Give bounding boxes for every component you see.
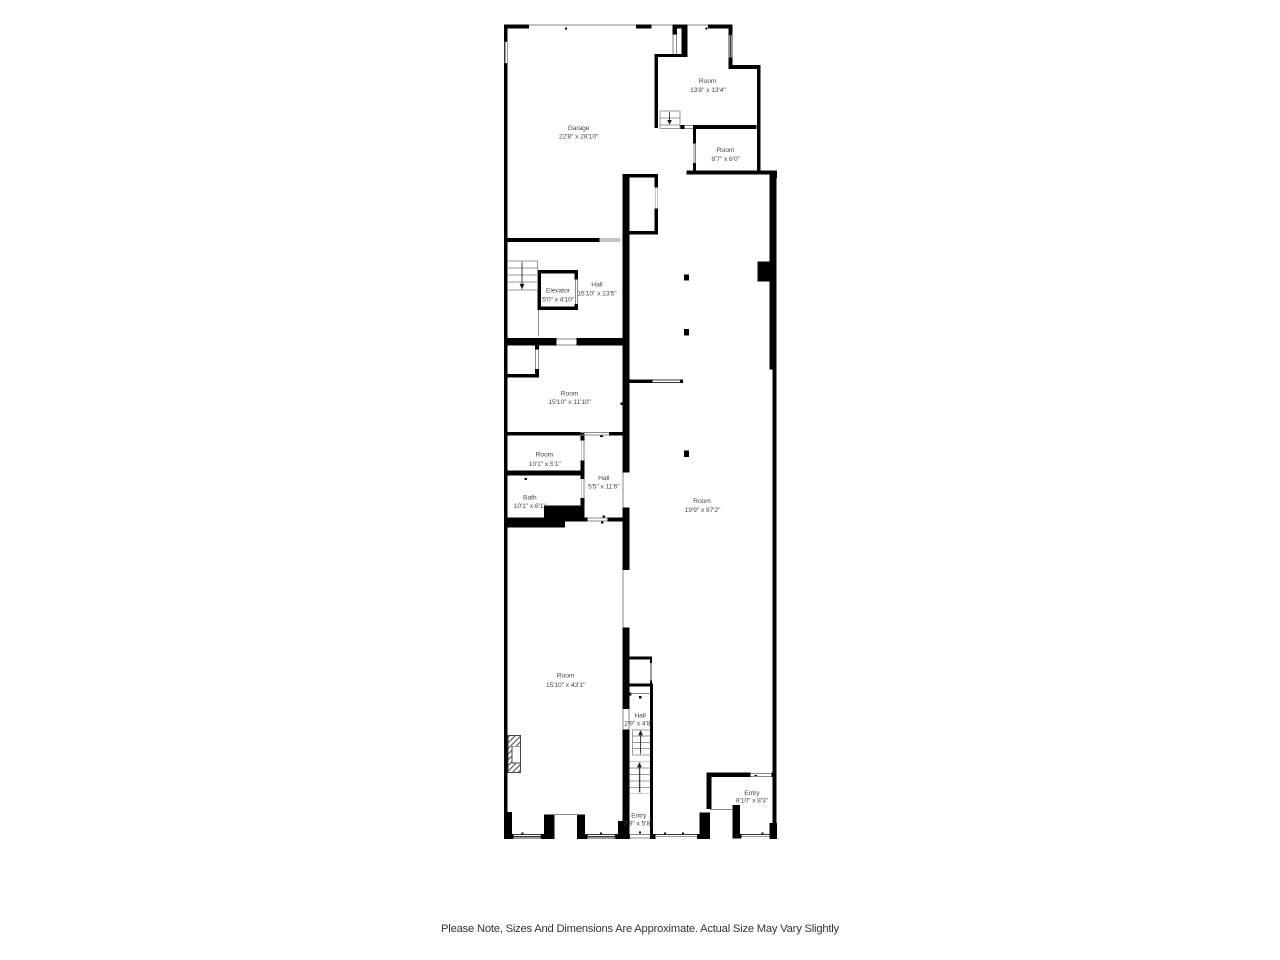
svg-text:Hall: Hall xyxy=(634,712,646,719)
svg-text:19'9" x 97'2": 19'9" x 97'2" xyxy=(685,507,721,514)
svg-text:Room: Room xyxy=(693,498,711,505)
svg-text:8'10" x 8'3": 8'10" x 8'3" xyxy=(736,797,769,804)
svg-text:Hall: Hall xyxy=(591,282,603,289)
svg-text:13'8" x 13'4": 13'8" x 13'4" xyxy=(690,87,726,94)
svg-text:Please Note, Sizes And Dimensi: Please Note, Sizes And Dimensions Are Ap… xyxy=(441,923,840,935)
svg-text:2'9" x 5'8": 2'9" x 5'8" xyxy=(624,821,653,828)
svg-text:Room: Room xyxy=(717,147,735,154)
svg-text:10'1" x 5'1": 10'1" x 5'1" xyxy=(529,461,562,468)
svg-text:5'5" x 11'6": 5'5" x 11'6" xyxy=(588,484,620,491)
svg-text:22'8" x 28'10": 22'8" x 28'10" xyxy=(559,134,599,141)
svg-text:5'0" x 4'10": 5'0" x 4'10" xyxy=(542,297,575,304)
svg-text:Hall: Hall xyxy=(598,475,610,482)
svg-text:10'1" x 6'1": 10'1" x 6'1" xyxy=(514,503,547,510)
svg-text:Room: Room xyxy=(536,451,554,458)
svg-text:Entry: Entry xyxy=(744,790,760,797)
svg-text:15'10" x 43'1": 15'10" x 43'1" xyxy=(546,682,586,689)
svg-text:Elevator: Elevator xyxy=(546,287,571,294)
svg-text:Room: Room xyxy=(699,78,717,85)
svg-text:Room: Room xyxy=(561,390,579,397)
svg-text:15'10" x 11'10": 15'10" x 11'10" xyxy=(548,399,591,406)
svg-text:Garage: Garage xyxy=(568,125,590,132)
svg-text:2'9" x 4'8": 2'9" x 4'8" xyxy=(624,721,653,728)
svg-text:Entry: Entry xyxy=(631,812,647,819)
svg-text:Bath: Bath xyxy=(523,495,537,502)
svg-text:15'10" x 13'5": 15'10" x 13'5" xyxy=(577,290,617,297)
svg-text:Room: Room xyxy=(557,672,575,679)
svg-text:8'7" x 6'0": 8'7" x 6'0" xyxy=(711,156,740,163)
